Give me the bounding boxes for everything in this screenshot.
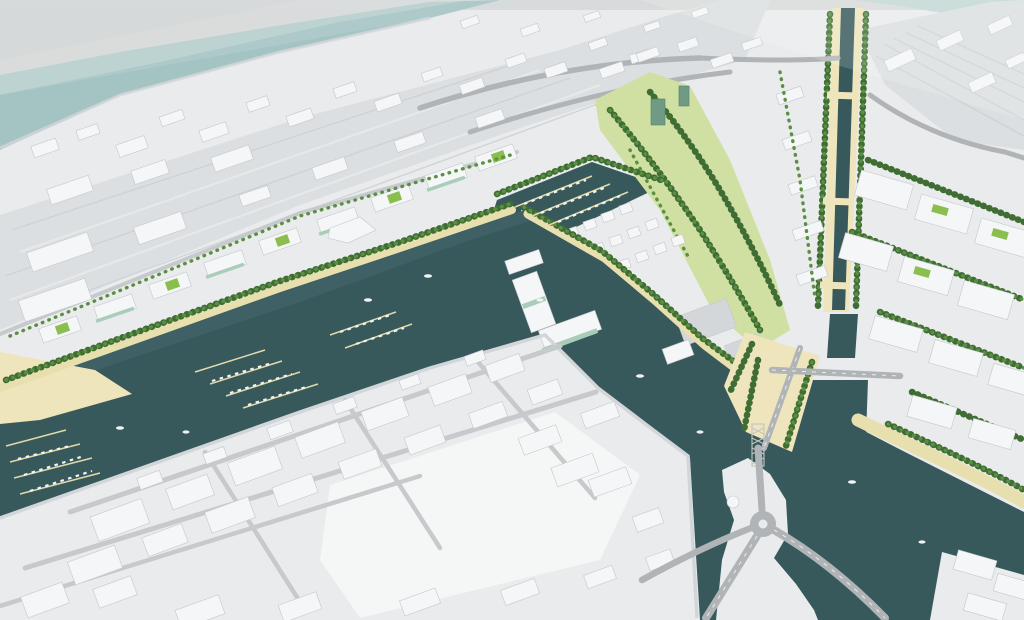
roundabout-island (759, 520, 768, 529)
canal-basin-a (827, 314, 858, 358)
render-canvas (0, 0, 1024, 620)
bridge-road (758, 448, 762, 510)
round-building (727, 496, 739, 508)
glass-tower (651, 99, 665, 125)
masterplan-render (0, 0, 1024, 620)
